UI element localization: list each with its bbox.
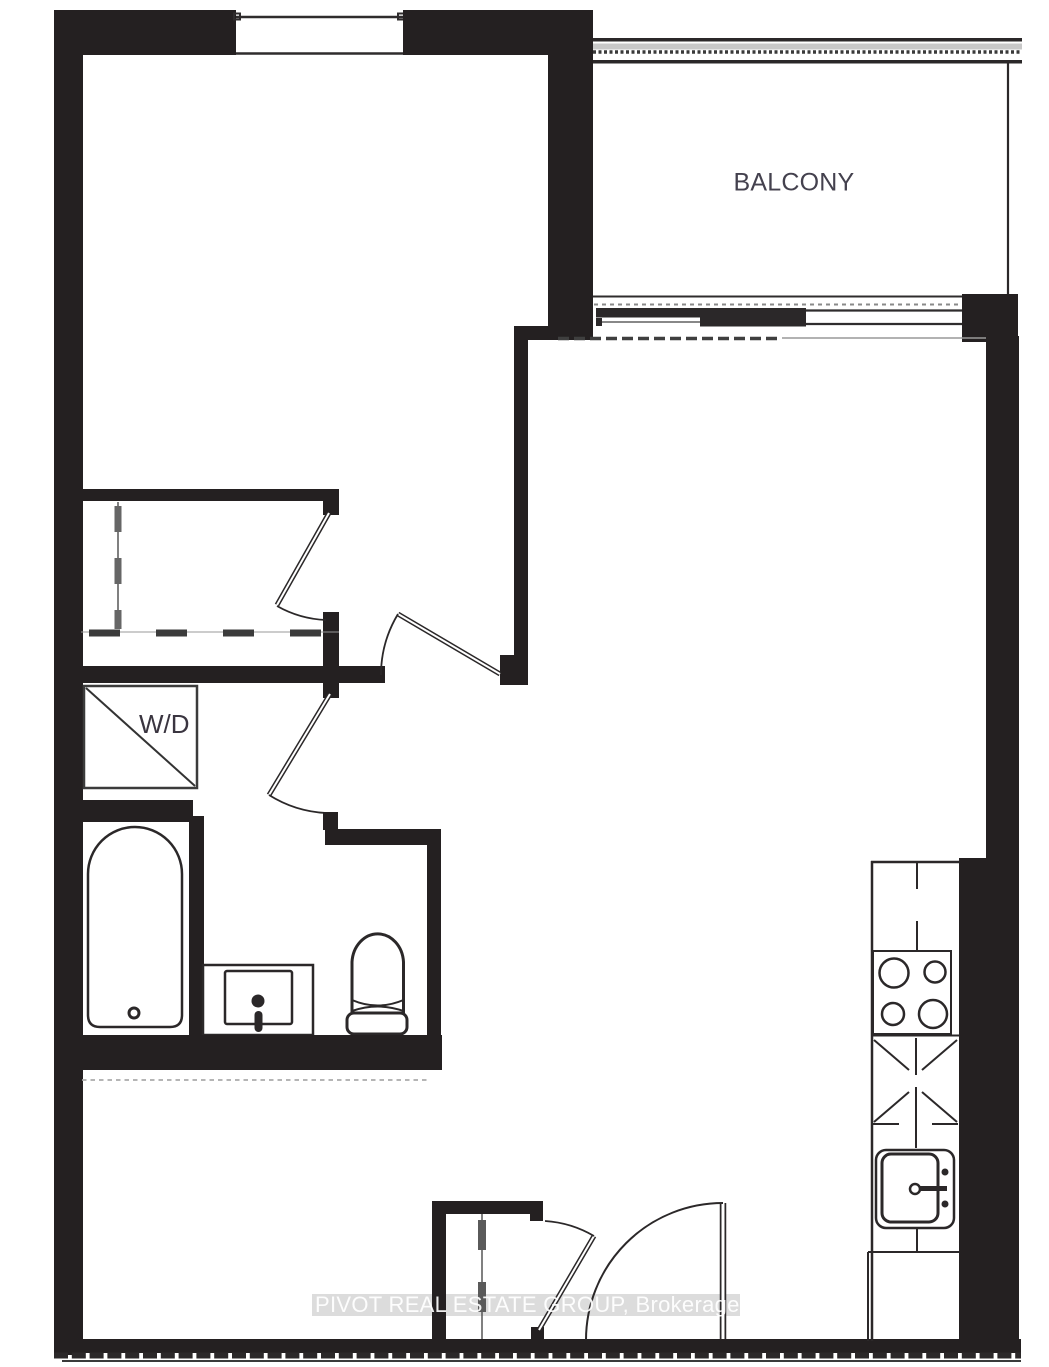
svg-text:PIVOT REAL ESTATE GROUP, Broke: PIVOT REAL ESTATE GROUP, Brokerage [315,1292,740,1317]
svg-text:BALCONY: BALCONY [734,169,855,197]
svg-text:W/D: W/D [139,709,190,739]
